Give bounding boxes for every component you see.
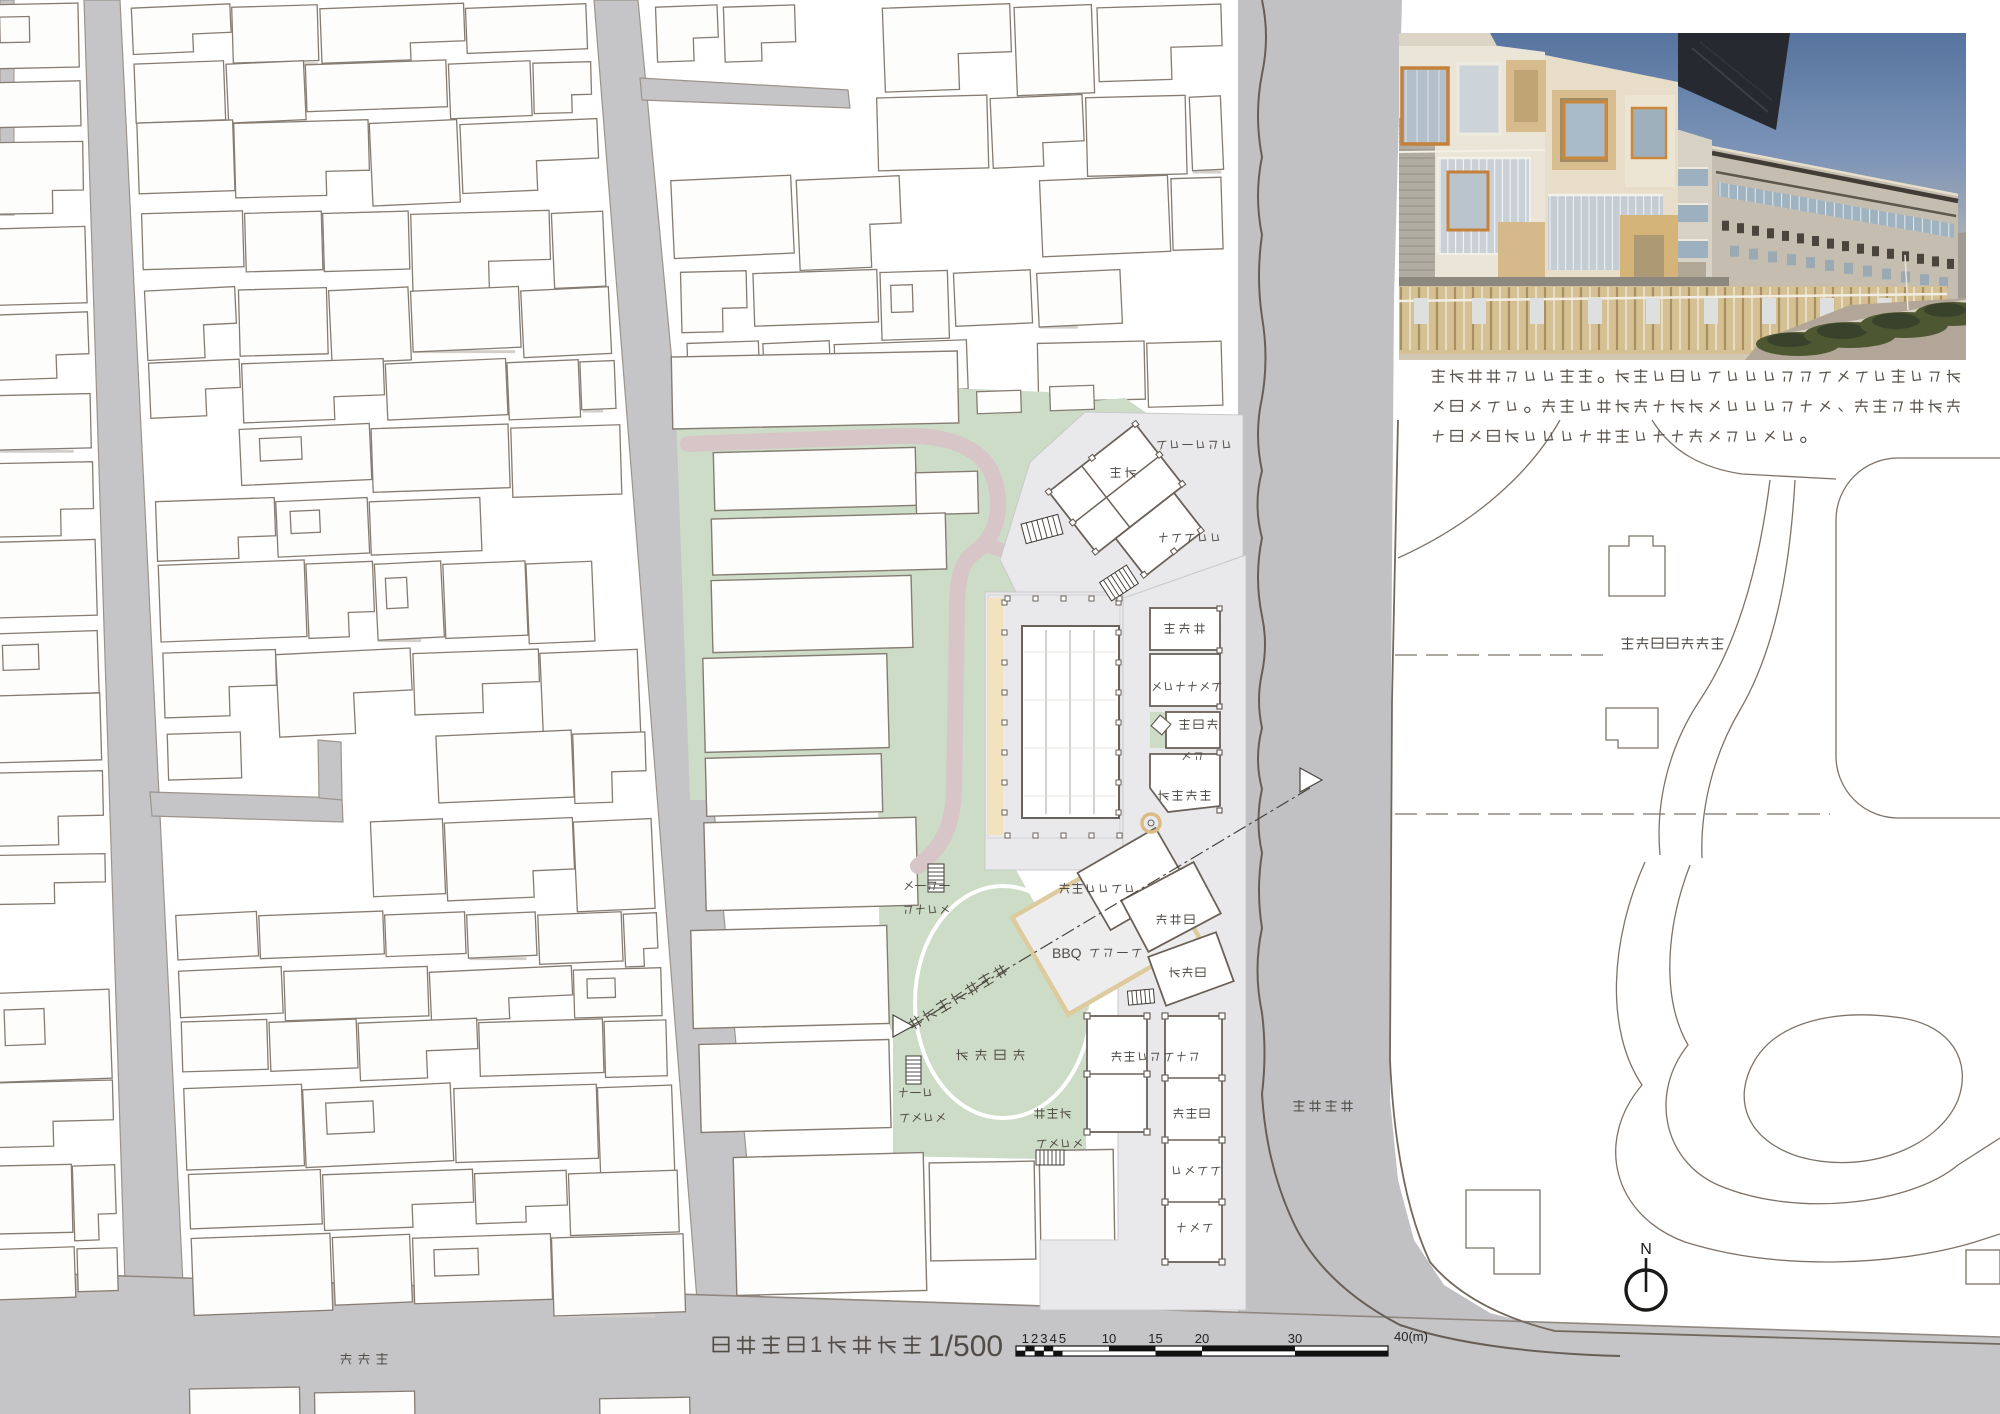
svg-text:4: 4 (1050, 1331, 1057, 1346)
svg-text:BBQ: BBQ (1052, 945, 1082, 961)
svg-text:N: N (1640, 1241, 1652, 1258)
svg-text:15: 15 (1148, 1331, 1162, 1346)
svg-text:5: 5 (1059, 1331, 1066, 1346)
svg-text:3: 3 (1040, 1331, 1047, 1346)
svg-text:1/500: 1/500 (928, 1330, 1003, 1363)
svg-text:1: 1 (810, 1332, 822, 1357)
svg-text:40(m): 40(m) (1394, 1329, 1428, 1344)
svg-text:20: 20 (1195, 1331, 1209, 1346)
svg-text:1: 1 (1022, 1331, 1029, 1346)
svg-text:10: 10 (1102, 1331, 1116, 1346)
svg-text:2: 2 (1031, 1331, 1038, 1346)
svg-text:30: 30 (1288, 1331, 1302, 1346)
